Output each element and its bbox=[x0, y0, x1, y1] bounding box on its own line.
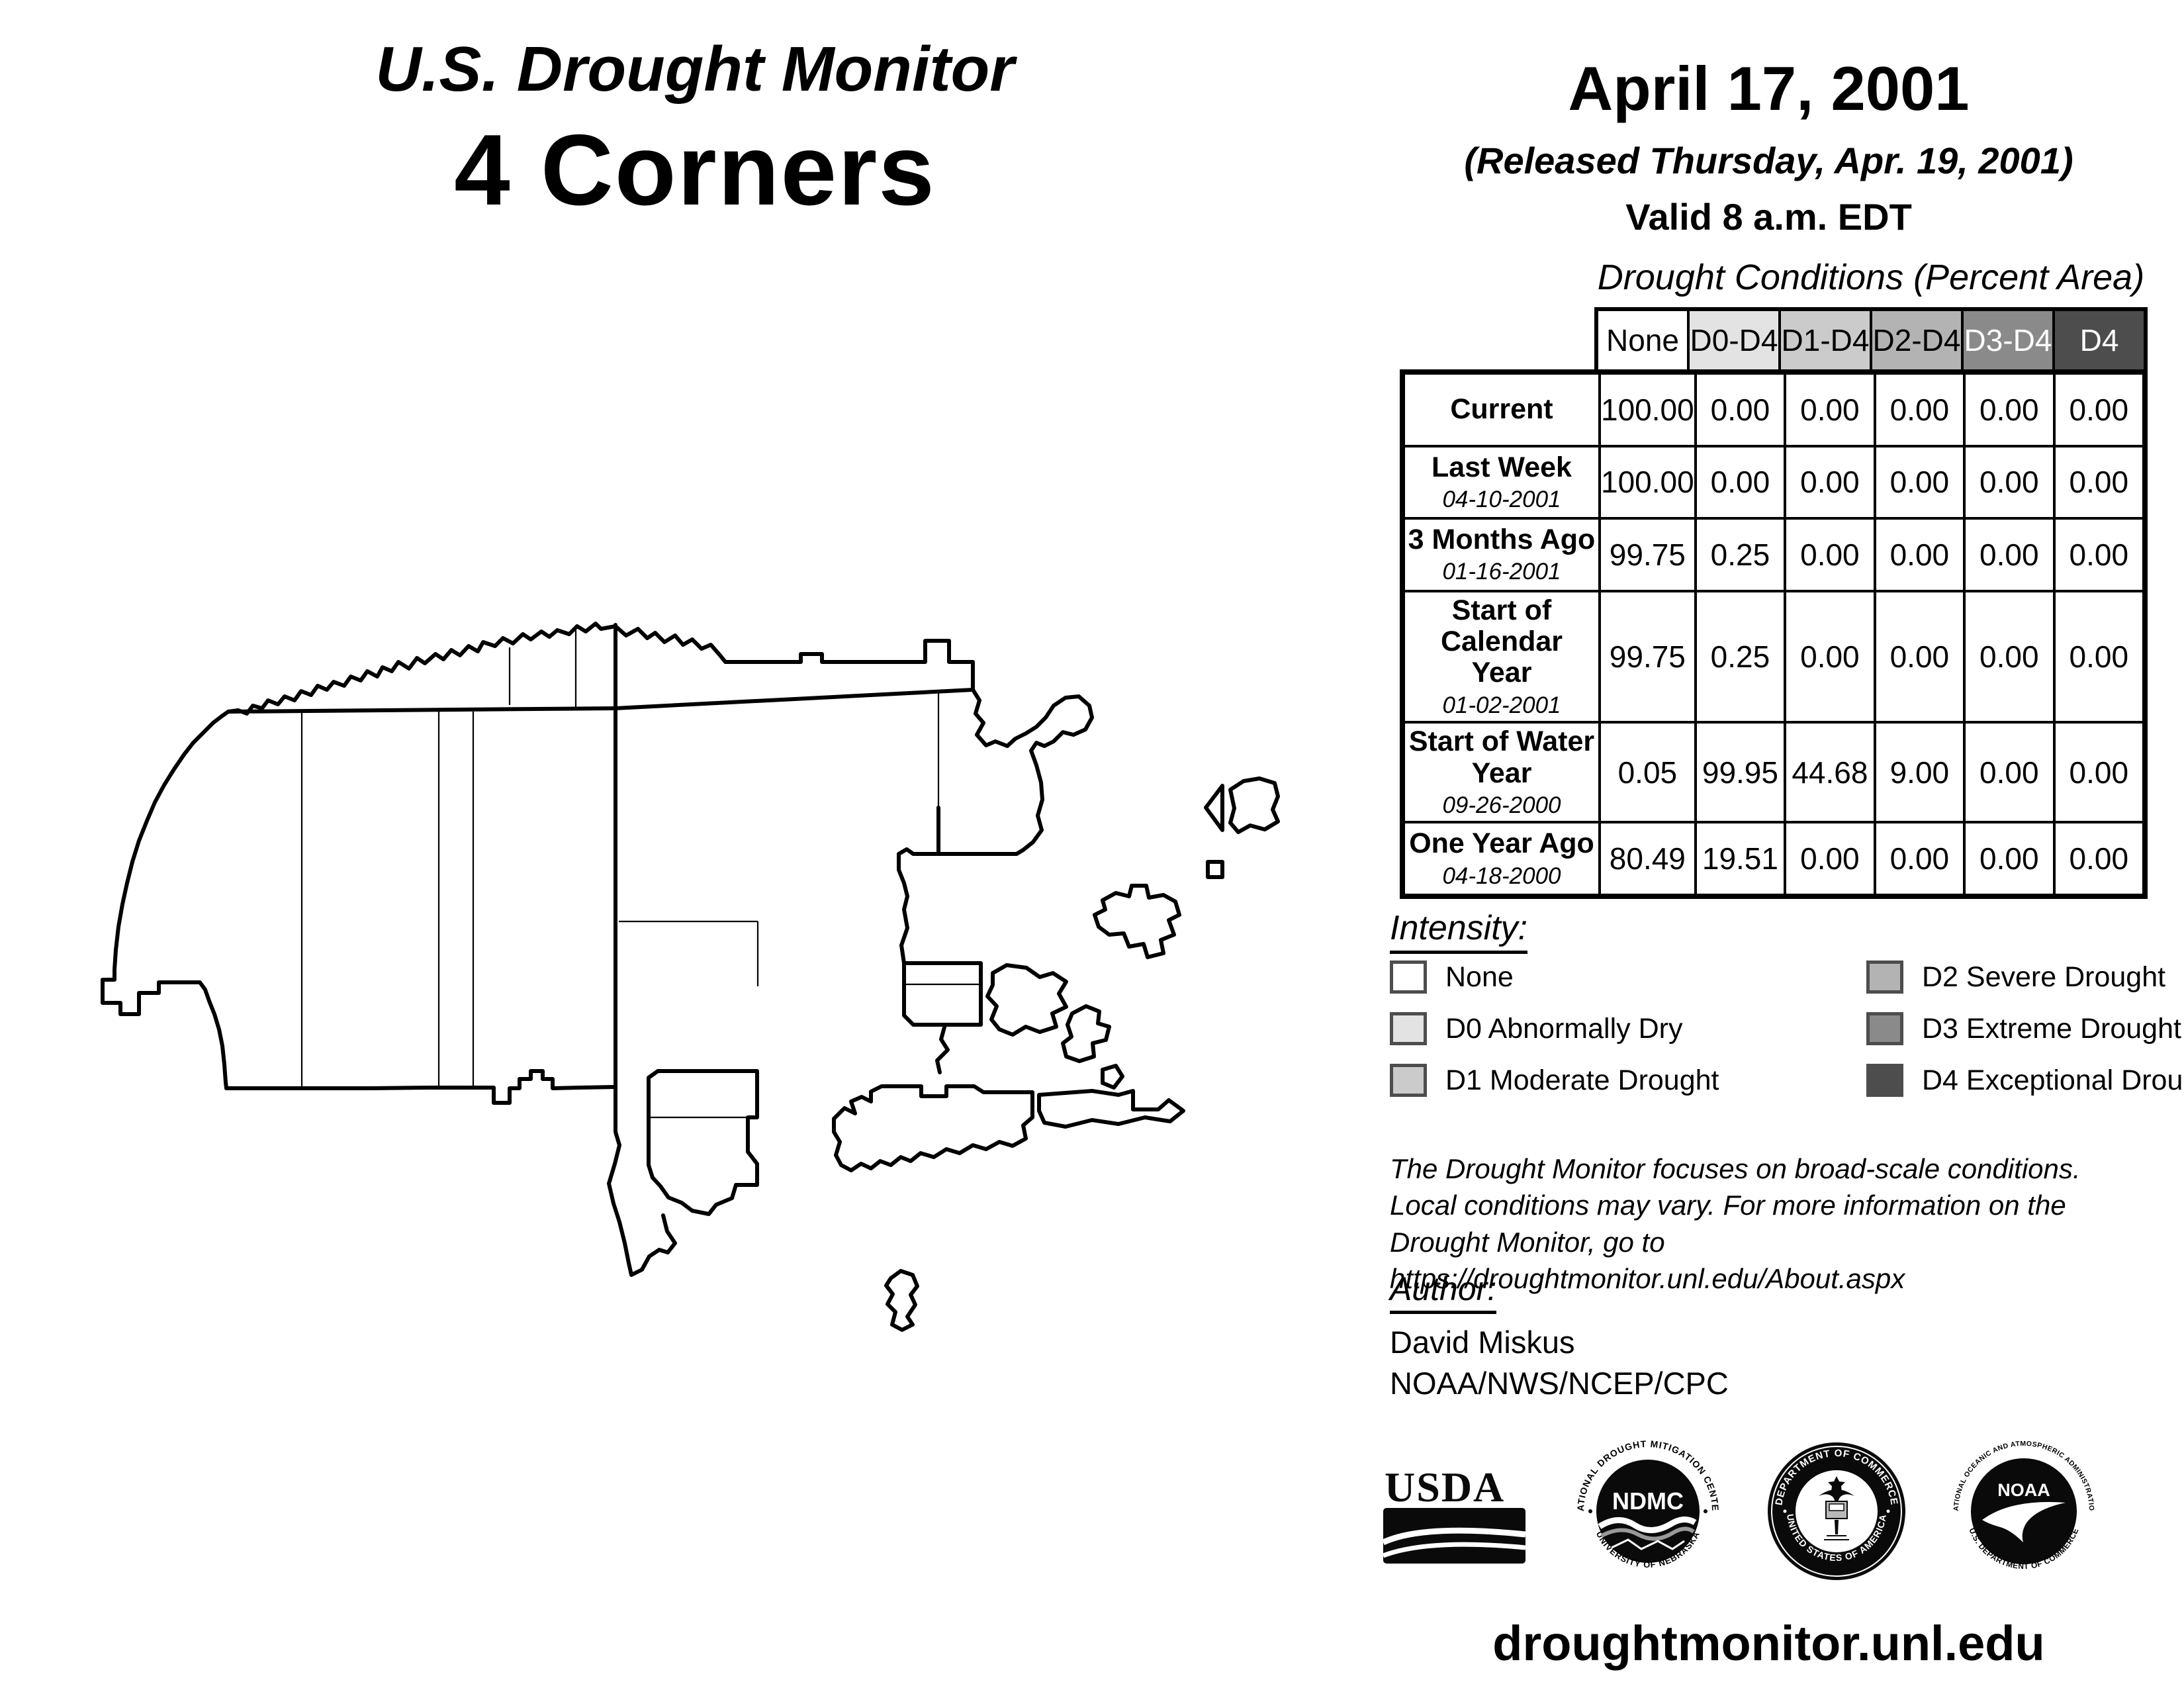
value-cell: 0.00 bbox=[1786, 592, 1873, 721]
legend-swatch bbox=[1390, 961, 1427, 994]
legend-swatch bbox=[1390, 1012, 1427, 1045]
column-header-d3-d4: D3-D4 bbox=[1964, 311, 2052, 369]
legend-column-right: D2 Severe DroughtD3 Extreme DroughtD4 Ex… bbox=[1866, 959, 2184, 1099]
value-cell: 0.00 bbox=[1876, 375, 1963, 445]
row-label: Current bbox=[1405, 375, 1598, 445]
commerce-seal: DEPARTMENT OF COMMERCE UNITED STATES OF … bbox=[1760, 1435, 1913, 1587]
usda-logo-text: USDA bbox=[1385, 1464, 1505, 1511]
value-cell: 44.68 bbox=[1786, 724, 1873, 821]
legend-item: D4 Exceptional Drought bbox=[1866, 1062, 2184, 1099]
column-header-d4: D4 bbox=[2055, 311, 2144, 369]
legend-column-left: NoneD0 Abnormally DryD1 Moderate Drought bbox=[1390, 959, 1719, 1099]
legend-swatch bbox=[1866, 1064, 1903, 1097]
legend-label: D0 Abnormally Dry bbox=[1445, 1013, 1682, 1045]
map-region-outline bbox=[103, 624, 1278, 1330]
legend-item: D1 Moderate Drought bbox=[1390, 1062, 1719, 1099]
author-org: NOAA/NWS/NCEP/CPC bbox=[1390, 1365, 1729, 1401]
drought-table-body: Current100.000.000.000.000.000.00Last We… bbox=[1400, 369, 2148, 899]
value-cell: 0.00 bbox=[1697, 447, 1784, 518]
value-cell: 0.00 bbox=[1697, 375, 1784, 445]
legend-swatch bbox=[1390, 1064, 1427, 1097]
legend-item: D2 Severe Drought bbox=[1866, 959, 2184, 996]
table-header-row: NoneD0-D4D1-D4D2-D4D3-D4D4 bbox=[1594, 307, 2148, 373]
value-cell: 0.00 bbox=[1786, 447, 1873, 518]
value-cell: 0.00 bbox=[2056, 823, 2142, 894]
row-label: Last Week04-10-2001 bbox=[1405, 447, 1598, 518]
map-county-lines bbox=[302, 630, 981, 1117]
value-cell: 99.95 bbox=[1697, 724, 1784, 821]
legend-item: D0 Abnormally Dry bbox=[1390, 1010, 1719, 1047]
value-cell: 0.25 bbox=[1697, 592, 1784, 721]
map-island bbox=[1206, 786, 1222, 830]
row-label: One Year Ago04-18-2000 bbox=[1405, 823, 1598, 894]
region-title: 4 Corners bbox=[199, 113, 1191, 228]
row-label: 3 Months Ago01-16-2001 bbox=[1405, 520, 1598, 590]
value-cell: 80.49 bbox=[1601, 823, 1694, 894]
value-cell: 0.00 bbox=[1876, 447, 1963, 518]
legend-item: D3 Extreme Drought bbox=[1866, 1010, 2184, 1047]
value-cell: 0.00 bbox=[1786, 375, 1873, 445]
drought-monitor-report: U.S. Drought Monitor 4 Corners April 17,… bbox=[0, 0, 2184, 1688]
row-label: Start of Calendar Year01-02-2001 bbox=[1405, 592, 1598, 721]
value-cell: 0.00 bbox=[1966, 447, 2052, 518]
ndmc-center-text: NDMC bbox=[1612, 1487, 1684, 1515]
legend-swatch bbox=[1866, 1012, 1903, 1045]
value-cell: 0.25 bbox=[1697, 520, 1784, 590]
noaa-logo: NATIONAL OCEANIC AND ATMOSPHERIC ADMINIS… bbox=[1948, 1435, 2100, 1587]
legend-label: None bbox=[1445, 961, 1514, 994]
disclaimer-line: Local conditions may vary. For more info… bbox=[1390, 1187, 2171, 1223]
value-cell: 0.00 bbox=[2056, 592, 2142, 721]
value-cell: 0.00 bbox=[2056, 724, 2142, 821]
four-corners-map-svg bbox=[86, 616, 1310, 1397]
ndmc-logo: NATIONAL DROUGHT MITIGATION CENTER UNIVE… bbox=[1572, 1435, 1724, 1587]
legend-title: Intensity: bbox=[1390, 908, 1527, 954]
drought-map bbox=[86, 616, 1310, 1397]
value-cell: 0.05 bbox=[1601, 724, 1694, 821]
value-cell: 99.75 bbox=[1601, 592, 1694, 721]
legend-item: None bbox=[1390, 959, 1719, 996]
table-title: Drought Conditions (Percent Area) bbox=[1594, 257, 2148, 298]
valid-time: Valid 8 a.m. EDT bbox=[1390, 195, 2148, 238]
disclaimer-line: The Drought Monitor focuses on broad-sca… bbox=[1390, 1150, 2171, 1187]
disclaimer-line: Drought Monitor, go to https://droughtmo… bbox=[1390, 1224, 2171, 1297]
value-cell: 9.00 bbox=[1876, 724, 1963, 821]
state-line bbox=[228, 690, 973, 712]
value-cell: 99.75 bbox=[1601, 520, 1694, 590]
value-cell: 0.00 bbox=[2056, 447, 2142, 518]
released-date: (Released Thursday, Apr. 19, 2001) bbox=[1390, 139, 2148, 182]
column-header-d0-d4: D0-D4 bbox=[1690, 311, 1778, 369]
author-name: David Miskus bbox=[1390, 1324, 1574, 1360]
value-cell: 0.00 bbox=[2056, 375, 2142, 445]
disclaimer-text: The Drought Monitor focuses on broad-sca… bbox=[1390, 1150, 2171, 1297]
value-cell: 0.00 bbox=[1966, 520, 2052, 590]
row-label: Start of Water Year09-26-2000 bbox=[1405, 724, 1598, 821]
legend-swatch bbox=[1866, 961, 1903, 994]
value-cell: 100.00 bbox=[1601, 447, 1694, 518]
value-cell: 0.00 bbox=[1786, 520, 1873, 590]
report-title: U.S. Drought Monitor bbox=[199, 33, 1191, 106]
column-header-d1-d4: D1-D4 bbox=[1781, 311, 1870, 369]
legend-label: D2 Severe Drought bbox=[1922, 961, 2165, 994]
value-cell: 19.51 bbox=[1697, 823, 1784, 894]
value-cell: 0.00 bbox=[1966, 592, 2052, 721]
value-cell: 0.00 bbox=[1876, 520, 1963, 590]
value-cell: 0.00 bbox=[1966, 823, 2052, 894]
report-date: April 17, 2001 bbox=[1390, 53, 2148, 124]
value-cell: 100.00 bbox=[1601, 375, 1694, 445]
column-header-d2-d4: D2-D4 bbox=[1872, 311, 1961, 369]
value-cell: 0.00 bbox=[1966, 375, 2052, 445]
value-cell: 0.00 bbox=[1786, 823, 1873, 894]
usda-logo: USDA bbox=[1383, 1464, 1525, 1564]
value-cell: 0.00 bbox=[1876, 592, 1963, 721]
footer-url: droughtmonitor.unl.edu bbox=[1390, 1615, 2148, 1671]
legend-label: D4 Exceptional Drought bbox=[1922, 1064, 2184, 1097]
author-heading: Author: bbox=[1390, 1270, 1496, 1314]
legend-label: D3 Extreme Drought bbox=[1922, 1013, 2181, 1045]
value-cell: 0.00 bbox=[2056, 520, 2142, 590]
noaa-center-text: NOAA bbox=[1997, 1480, 2050, 1500]
column-header-none: None bbox=[1598, 311, 1687, 369]
value-cell: 0.00 bbox=[1876, 823, 1963, 894]
legend-label: D1 Moderate Drought bbox=[1445, 1064, 1719, 1097]
value-cell: 0.00 bbox=[1966, 724, 2052, 821]
